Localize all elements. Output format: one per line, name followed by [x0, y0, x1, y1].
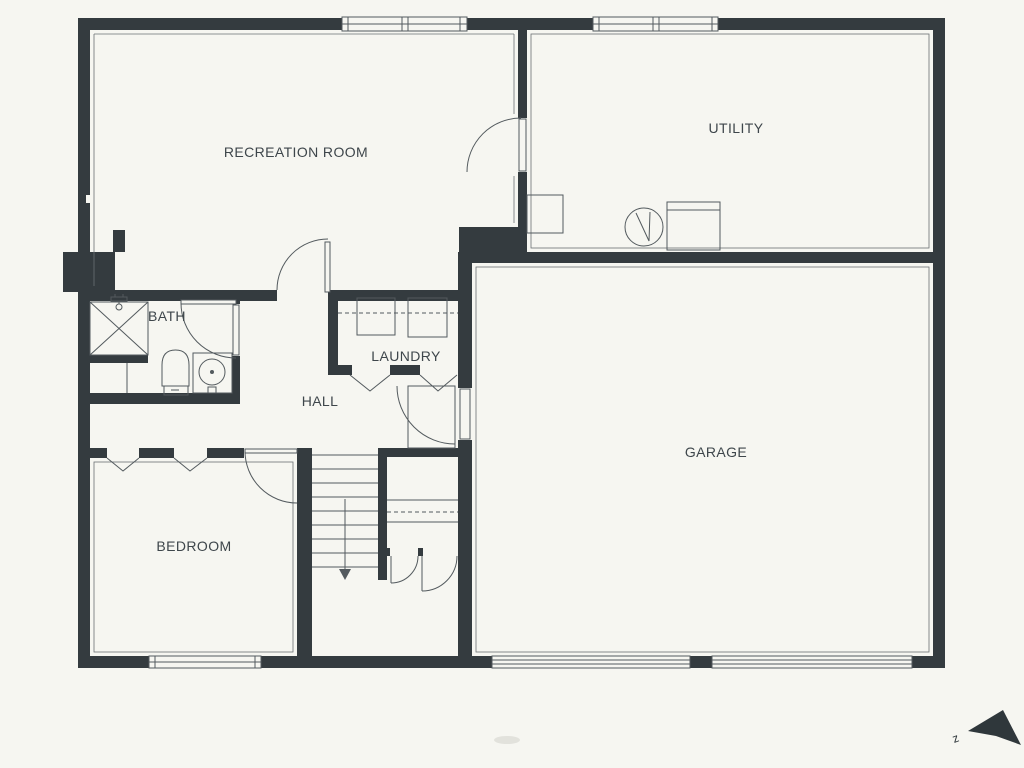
label-bath: BATH	[148, 308, 186, 324]
compass-letter: z	[950, 731, 960, 746]
label-hall: HALL	[302, 393, 339, 409]
walls	[63, 18, 945, 668]
garage-door-cut-2	[712, 656, 912, 668]
label-bedroom: BEDROOM	[156, 538, 231, 554]
wall-storage-north	[387, 448, 458, 457]
wall-laundry-south-1	[328, 365, 352, 375]
wall-garage-west	[458, 252, 472, 656]
wall-bedroom-north-1	[78, 448, 107, 458]
wall-storage-south-stub	[418, 548, 423, 556]
wall-bedroom-north-3	[207, 448, 244, 458]
washer-icon	[357, 298, 395, 335]
wall-exterior-left-lower	[78, 292, 90, 656]
water-heater-icon	[625, 208, 663, 246]
bedroom-closet-chevron-2	[174, 458, 207, 471]
laundry-chevron-1	[350, 375, 390, 391]
storage-cabinet-icon	[527, 195, 563, 233]
room-inset-outlines	[94, 34, 929, 652]
wall-stair-west	[297, 448, 312, 656]
wall-exterior-right	[933, 18, 945, 668]
wall-notch	[86, 195, 90, 203]
wall-laundry-south-stub	[390, 365, 420, 375]
toilet-icon	[162, 350, 189, 395]
garage-door-cut-1	[492, 656, 690, 668]
inset-recreation	[94, 34, 514, 286]
door-recreation-hall	[277, 239, 330, 292]
door-recreation-utility	[467, 118, 526, 172]
north-arrow-icon	[968, 710, 1021, 745]
wall-exterior-left-upper	[78, 18, 90, 252]
furnace-icon	[667, 202, 720, 250]
doors	[181, 118, 526, 591]
wall-storage-south-1	[378, 548, 390, 556]
stairs-down-icon	[312, 455, 378, 580]
watermark	[494, 736, 520, 744]
wall-exterior-top	[78, 18, 945, 30]
wall-hall-north-east	[328, 290, 458, 301]
wall-under-shower	[78, 355, 148, 363]
wall-step-stub	[113, 230, 125, 252]
wall-openings	[86, 17, 912, 668]
chimney-block	[63, 252, 115, 292]
floor-plan-canvas: RECREATION ROOM UTILITY BATH LAUNDRY HAL…	[0, 0, 1024, 768]
wall-bath-south	[78, 393, 240, 404]
door-bath	[181, 300, 239, 358]
wall-laundry-west	[328, 301, 338, 375]
counter-icon	[387, 500, 458, 522]
inset-utility	[531, 34, 929, 248]
wall-rec-utility-top	[518, 18, 527, 118]
wall-hall-north-west	[78, 290, 277, 301]
room-labels: RECREATION ROOM UTILITY BATH LAUNDRY HAL…	[148, 120, 764, 554]
bedroom-closet-chevron-1	[107, 458, 139, 471]
wall-garage-north	[459, 252, 945, 263]
label-utility: UTILITY	[709, 120, 764, 136]
dryer-icon	[408, 298, 447, 337]
compass: z	[950, 710, 1021, 746]
door-bedroom	[245, 449, 297, 503]
label-garage: GARAGE	[685, 444, 747, 460]
stairs-direction-arrow	[339, 569, 351, 580]
wall-bedroom-north-2	[139, 448, 174, 458]
wall-stair-east	[378, 448, 387, 580]
label-laundry: LAUNDRY	[371, 348, 441, 364]
door-storage-left	[391, 556, 418, 583]
windows	[149, 17, 912, 668]
label-recreation-room: RECREATION ROOM	[224, 144, 368, 160]
sink-icon	[193, 353, 232, 393]
door-storage-right	[422, 556, 457, 591]
laundry-chevron-2	[420, 375, 457, 391]
wall-rec-utility-bottom	[518, 172, 527, 227]
floor-plan: RECREATION ROOM UTILITY BATH LAUNDRY HAL…	[0, 0, 1024, 768]
